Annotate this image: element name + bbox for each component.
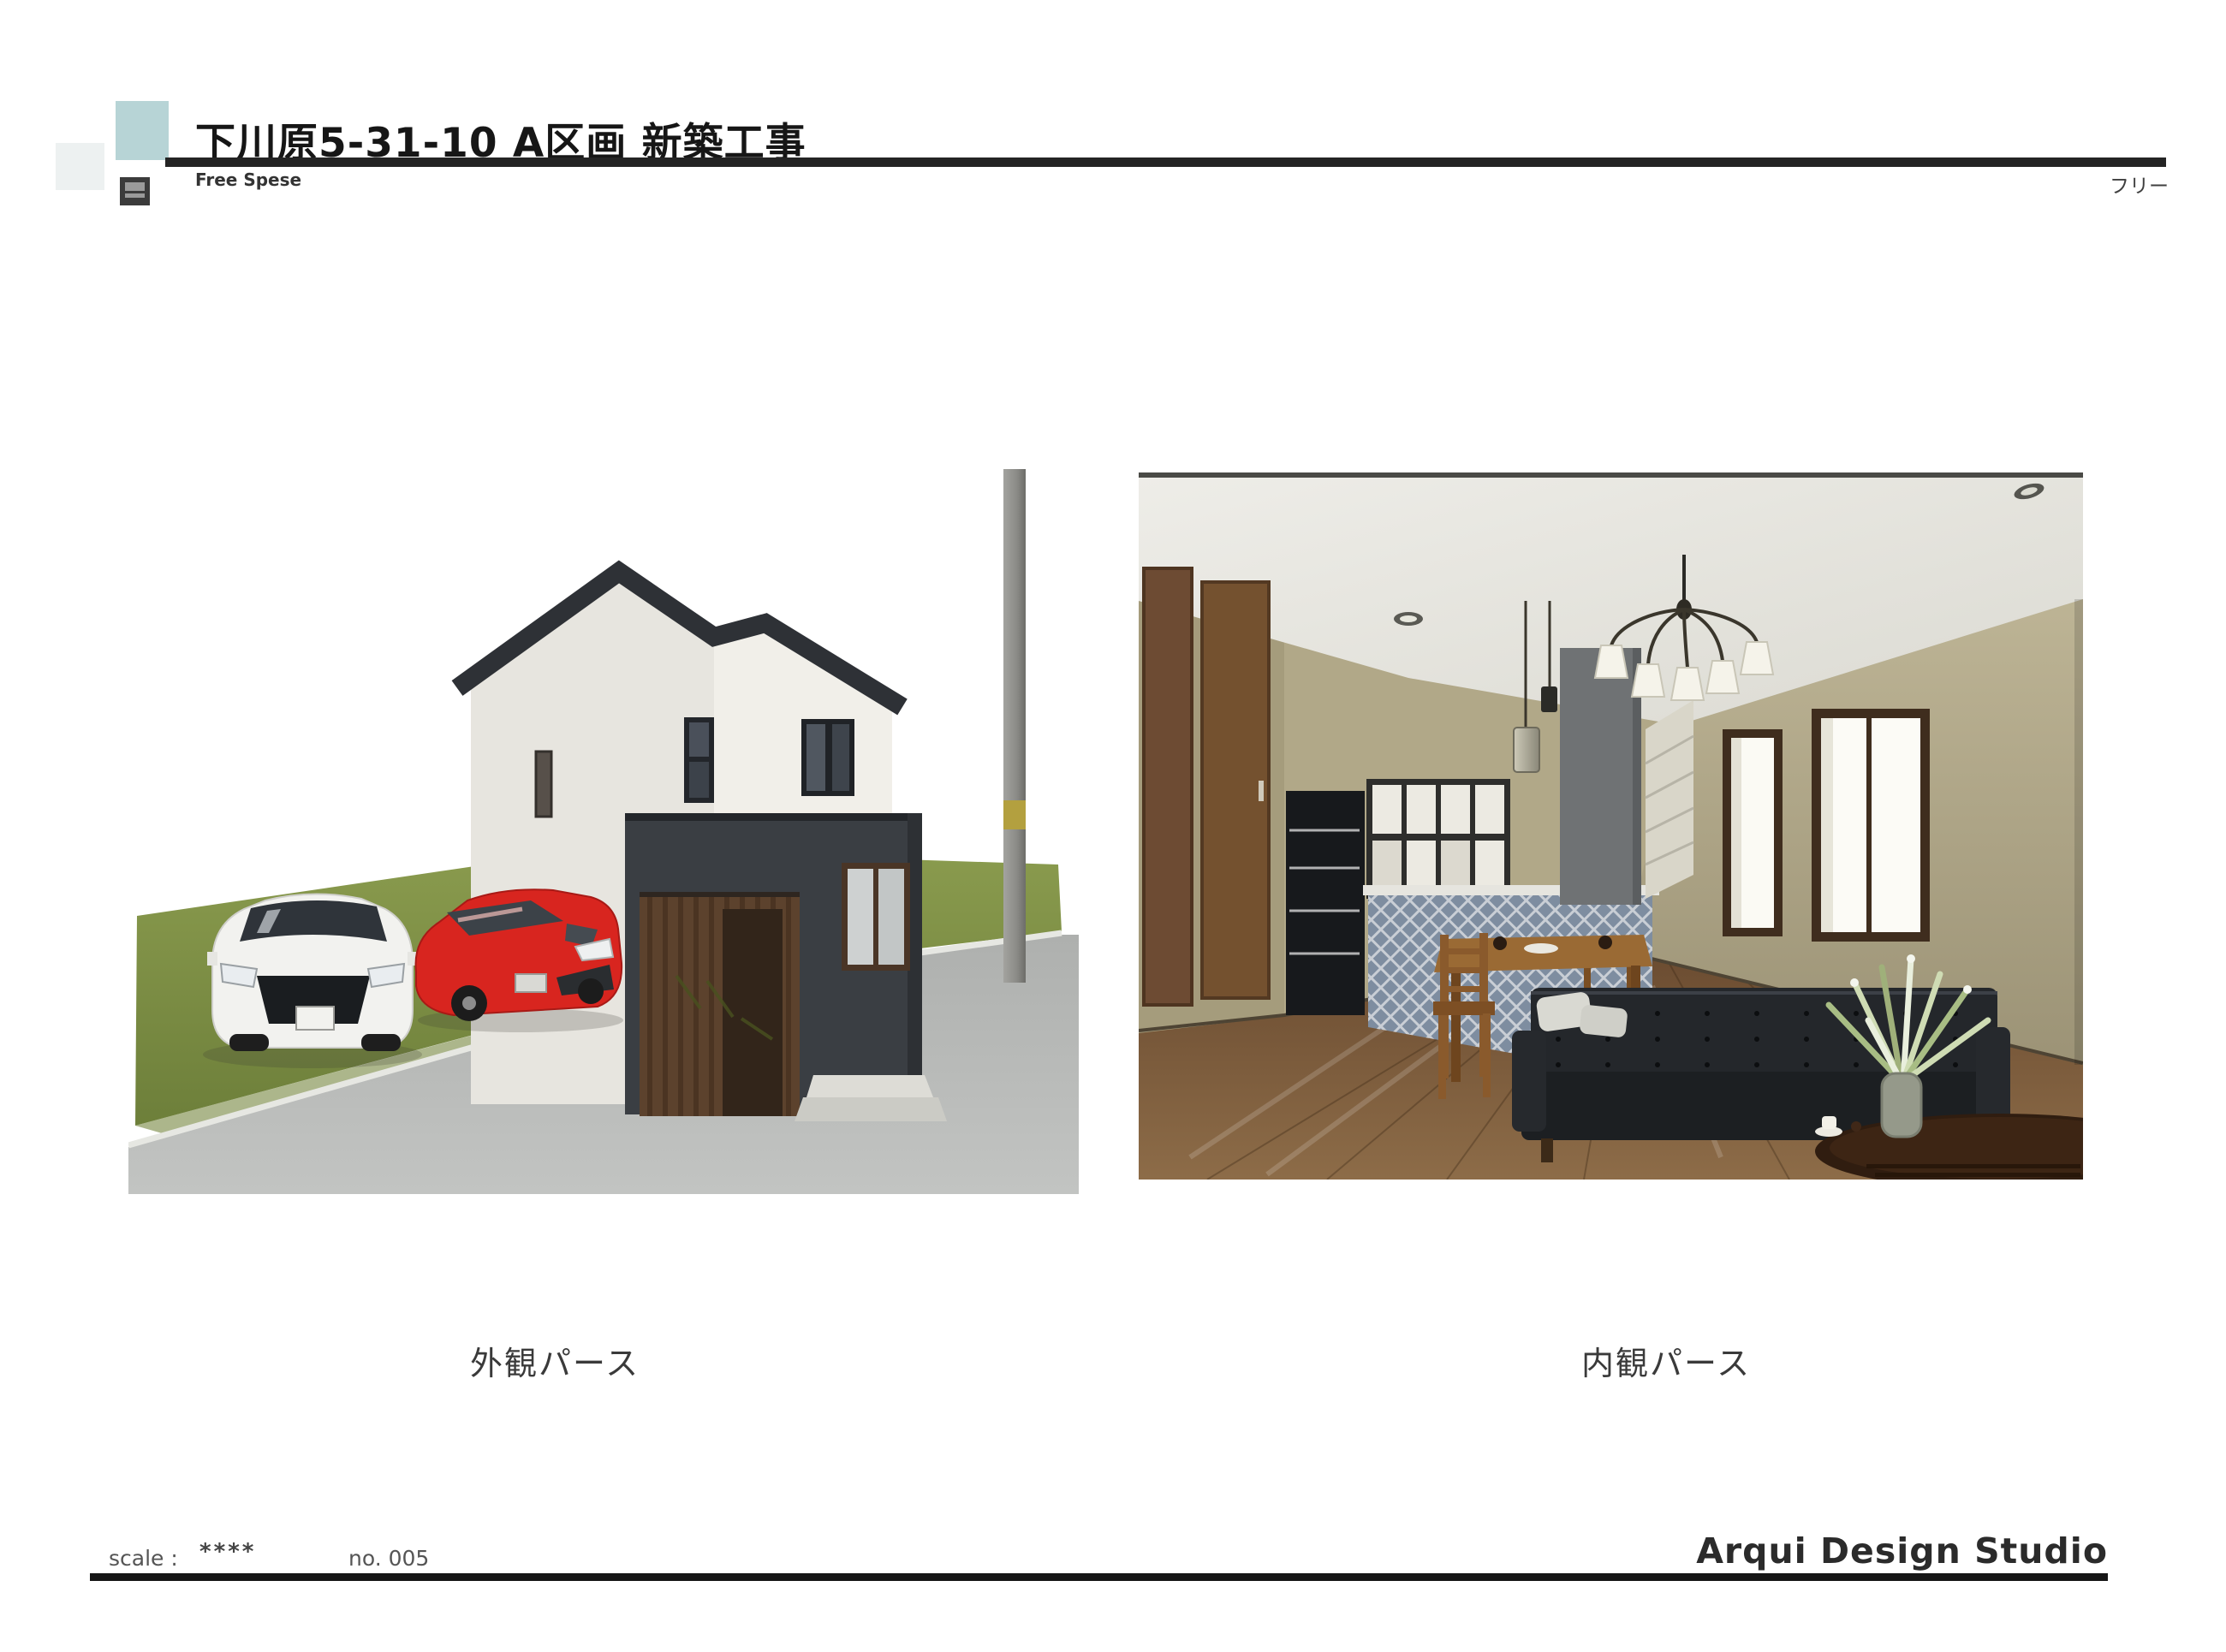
garage-side-windows	[842, 863, 910, 971]
glass-cabinet	[1366, 779, 1510, 899]
left-doors	[1144, 568, 1269, 1005]
interior-rendering	[1139, 472, 2083, 1180]
sheet-number: no. 005	[348, 1546, 429, 1571]
free-space-label: Free Spese	[195, 169, 301, 190]
gray-partition	[1560, 648, 1641, 905]
exterior-rendering	[128, 462, 1079, 1194]
pole-yellow-band	[1003, 800, 1026, 829]
window-large	[1812, 709, 1930, 942]
entry-steps	[795, 1075, 947, 1121]
pendant-shade-small	[1541, 686, 1557, 712]
sofa-armrest	[1512, 1031, 1546, 1132]
window-small	[1723, 729, 1783, 936]
pale-square-decoration	[56, 143, 104, 190]
exterior-caption: 外観パース	[470, 1337, 640, 1384]
sofa-pillow	[1579, 1004, 1628, 1037]
interior-caption: 内観パース	[1581, 1337, 1751, 1384]
left-window	[536, 752, 551, 817]
suv-wheel	[229, 1034, 269, 1051]
white-suv	[203, 894, 422, 1068]
red-car-license-plate	[515, 974, 546, 992]
free-kana-label: フリー	[2072, 169, 2169, 199]
garage-volume	[625, 813, 922, 1116]
grid-icon	[120, 177, 150, 205]
front-window	[684, 717, 714, 803]
teal-square-decoration	[116, 101, 169, 160]
plant-vase	[1882, 1073, 1921, 1137]
door-handle	[1259, 781, 1264, 801]
pendant-shade	[1514, 728, 1539, 772]
drawing-sheet: 下川原5-31-10 A区画 新築工事 Free Spese フリー	[0, 0, 2226, 1652]
suv-license-plate	[296, 1007, 334, 1030]
house	[457, 572, 947, 1121]
scale-value: ****	[199, 1539, 256, 1565]
suv-wheel	[361, 1034, 401, 1051]
staircase	[1646, 700, 1693, 899]
windows	[1723, 709, 1930, 942]
refrigerator	[1286, 791, 1365, 1015]
footer-rule	[90, 1573, 2108, 1581]
side-window-pair	[801, 719, 854, 796]
title-underline	[165, 157, 2166, 167]
studio-name: Arqui Design Studio	[1455, 1530, 2108, 1572]
utility-pole	[1003, 469, 1026, 983]
red-car-wheel	[578, 978, 604, 1004]
scale-label: scale :	[109, 1546, 178, 1571]
